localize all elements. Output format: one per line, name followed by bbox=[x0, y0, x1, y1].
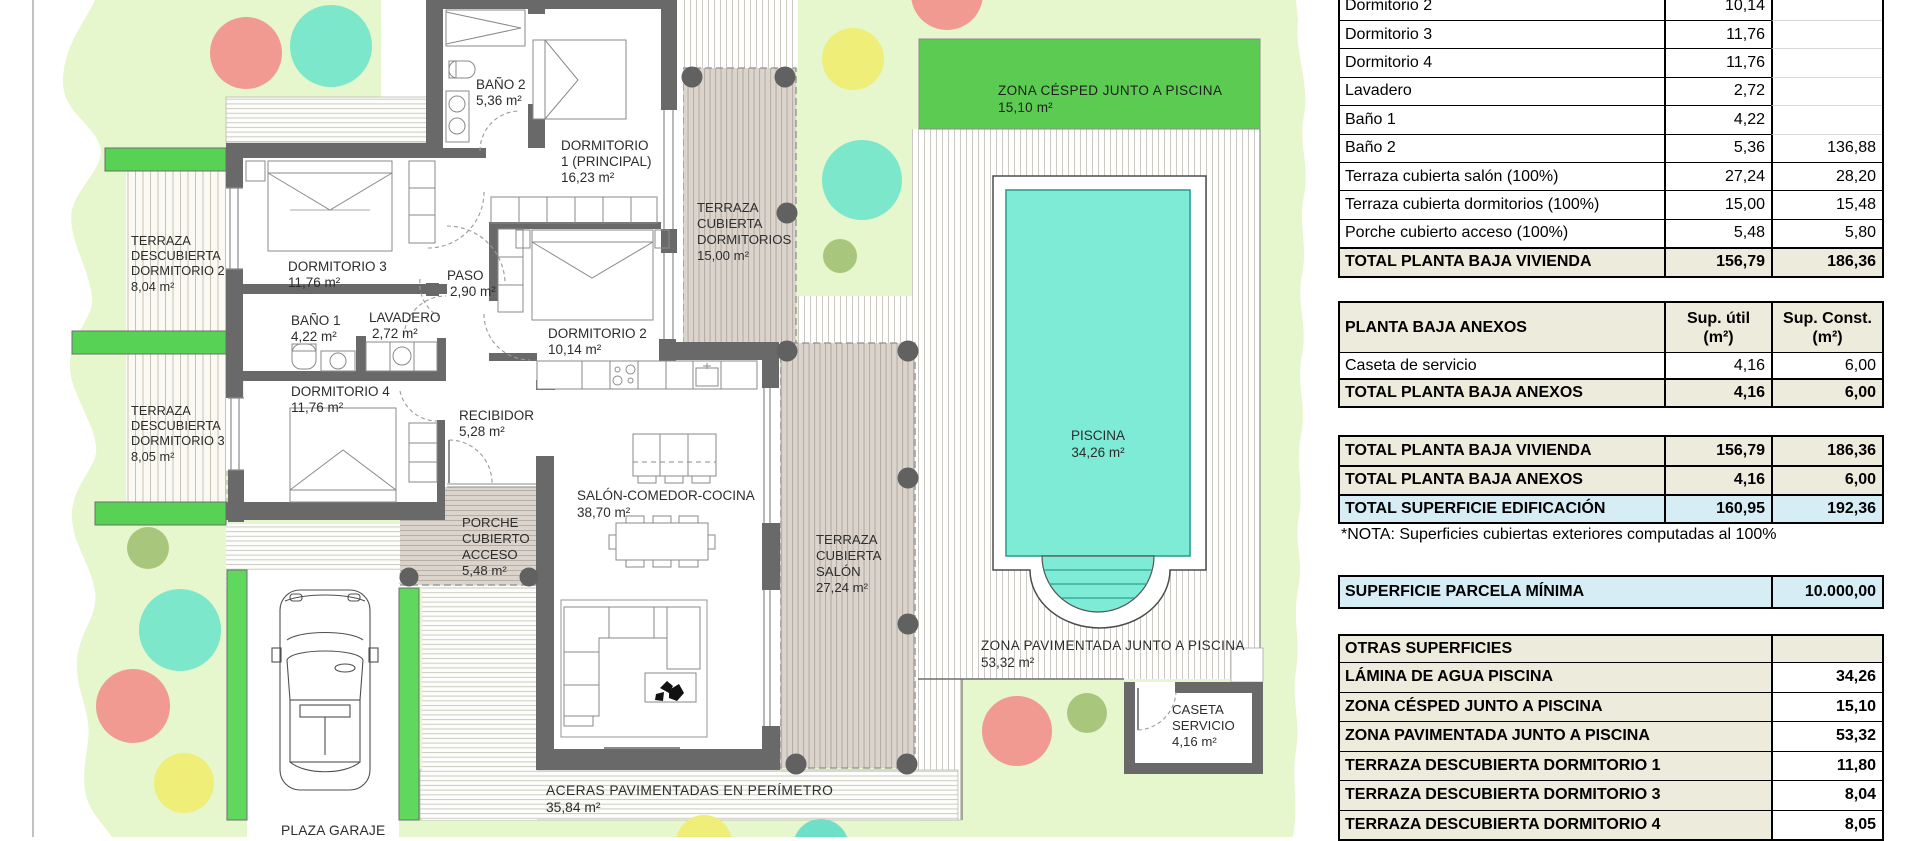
svg-text:2,72 m²: 2,72 m² bbox=[372, 326, 418, 341]
svg-text:TERRAZA: TERRAZA bbox=[816, 532, 878, 547]
svg-text:DORMITORIO: DORMITORIO bbox=[561, 138, 649, 153]
svg-text:RECIBIDOR: RECIBIDOR bbox=[459, 408, 534, 423]
svg-text:ACCESO: ACCESO bbox=[462, 547, 518, 562]
svg-text:4,16 m²: 4,16 m² bbox=[1172, 734, 1217, 749]
svg-text:PASO: PASO bbox=[447, 268, 484, 283]
svg-text:CUBIERTO: CUBIERTO bbox=[462, 531, 530, 546]
svg-text:CUBIERTA: CUBIERTA bbox=[816, 548, 882, 563]
svg-text:DESCUBIERTA: DESCUBIERTA bbox=[131, 248, 221, 263]
svg-text:38,70 m²: 38,70 m² bbox=[577, 505, 631, 520]
svg-text:34,26 m²: 34,26 m² bbox=[1071, 445, 1125, 460]
svg-text:8,04 m²: 8,04 m² bbox=[131, 279, 175, 294]
svg-text:TERRAZA: TERRAZA bbox=[131, 233, 191, 248]
svg-text:CUBIERTA: CUBIERTA bbox=[697, 216, 763, 231]
svg-text:DORMITORIOS: DORMITORIOS bbox=[697, 232, 791, 247]
svg-text:TERRAZA: TERRAZA bbox=[697, 200, 759, 215]
svg-text:2,90 m²: 2,90 m² bbox=[450, 284, 496, 299]
svg-text:53,32 m²: 53,32 m² bbox=[981, 655, 1035, 670]
svg-text:4,22 m²: 4,22 m² bbox=[291, 329, 337, 344]
svg-text:16,23 m²: 16,23 m² bbox=[561, 170, 615, 185]
svg-text:DORMITORIO 3: DORMITORIO 3 bbox=[131, 433, 225, 448]
svg-text:DESCUBIERTA: DESCUBIERTA bbox=[131, 418, 221, 433]
svg-text:DORMITORIO 2: DORMITORIO 2 bbox=[548, 326, 647, 341]
svg-text:11,76 m²: 11,76 m² bbox=[291, 400, 344, 415]
svg-text:15,10 m²: 15,10 m² bbox=[998, 100, 1053, 115]
svg-text:LAVADERO: LAVADERO bbox=[369, 310, 441, 325]
svg-text:11,76 m²: 11,76 m² bbox=[288, 275, 341, 290]
svg-text:35,84 m²: 35,84 m² bbox=[546, 800, 601, 815]
svg-text:BAÑO 1: BAÑO 1 bbox=[291, 313, 341, 328]
svg-text:SALÓN: SALÓN bbox=[816, 564, 861, 579]
svg-text:CASETA: CASETA bbox=[1172, 702, 1224, 717]
svg-text:DORMITORIO 4: DORMITORIO 4 bbox=[291, 384, 390, 399]
svg-text:ZONA CÉSPED JUNTO A PISCINA: ZONA CÉSPED JUNTO A PISCINA bbox=[998, 83, 1222, 98]
svg-text:SALÓN-COMEDOR-COCINA: SALÓN-COMEDOR-COCINA bbox=[577, 488, 755, 503]
svg-text:PISCINA: PISCINA bbox=[1071, 428, 1125, 443]
svg-text:5,36 m²: 5,36 m² bbox=[476, 93, 522, 108]
svg-text:5,48 m²: 5,48 m² bbox=[462, 563, 507, 578]
svg-text:TERRAZA: TERRAZA bbox=[131, 403, 191, 418]
svg-text:27,24 m²: 27,24 m² bbox=[816, 580, 869, 595]
svg-text:1 (PRINCIPAL): 1 (PRINCIPAL) bbox=[561, 154, 652, 169]
svg-text:DORMITORIO 3: DORMITORIO 3 bbox=[288, 259, 387, 274]
svg-text:BAÑO 2: BAÑO 2 bbox=[476, 77, 526, 92]
svg-text:ACERAS PAVIMENTADAS EN PERÍMET: ACERAS PAVIMENTADAS EN PERÍMETRO bbox=[546, 782, 833, 798]
svg-text:8,05 m²: 8,05 m² bbox=[131, 449, 175, 464]
svg-text:SERVICIO: SERVICIO bbox=[1172, 718, 1235, 733]
svg-text:PORCHE: PORCHE bbox=[462, 515, 519, 530]
svg-text:5,28 m²: 5,28 m² bbox=[459, 424, 505, 439]
svg-text:DORMITORIO 2: DORMITORIO 2 bbox=[131, 263, 225, 278]
svg-text:PLAZA GARAJE: PLAZA GARAJE bbox=[281, 823, 385, 837]
svg-text:ZONA PAVIMENTADA JUNTO A PISCI: ZONA PAVIMENTADA JUNTO A PISCINA bbox=[981, 638, 1245, 653]
svg-text:15,00 m²: 15,00 m² bbox=[697, 248, 750, 263]
svg-text:10,14 m²: 10,14 m² bbox=[548, 342, 602, 357]
